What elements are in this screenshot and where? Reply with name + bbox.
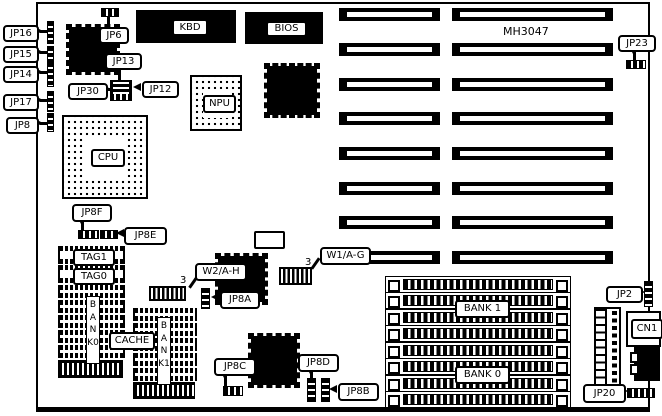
jp2-header xyxy=(644,281,653,307)
jp20-header xyxy=(594,307,621,390)
npu-label: NPU xyxy=(203,95,236,113)
expansion-slot-4-long xyxy=(452,112,613,125)
bank1-simm-label: BANK 1 xyxy=(455,300,510,318)
w2ah-callout: W2/A-H xyxy=(195,263,247,281)
jp12-callout: JP12 xyxy=(142,81,179,98)
simm-socket-1 xyxy=(385,276,571,293)
jp16-callout: JP16 xyxy=(3,25,39,42)
jp8b-callout: JP8B xyxy=(338,383,379,401)
cn1-label: CN1 xyxy=(631,319,662,339)
cpu-label: CPU xyxy=(91,149,125,167)
jp6-callout: JP6 xyxy=(99,27,129,44)
jp17-header xyxy=(47,91,54,112)
w2-jumper-block xyxy=(149,286,186,301)
expansion-slot-1-long xyxy=(452,8,613,21)
jp8d-callout: JP8D xyxy=(298,354,339,372)
jp17-callout: JP17 xyxy=(3,94,39,111)
jp8a-callout: JP8A xyxy=(220,291,260,309)
oscillator-outline xyxy=(254,231,285,249)
expansion-slot-6-long xyxy=(452,182,613,195)
jp23-callout: JP23 xyxy=(618,35,656,52)
expansion-slot-4-short xyxy=(339,112,440,125)
jp23-jumper xyxy=(626,60,646,69)
jp8c-callout: JP8C xyxy=(214,358,256,376)
jp14-callout: JP14 xyxy=(3,66,39,83)
expansion-slot-2-short xyxy=(339,43,440,56)
cache-label: CACHE xyxy=(109,332,155,350)
jp8f-callout: JP8F xyxy=(72,204,112,222)
jp8d-jumper xyxy=(307,378,316,402)
bank0-simm-label: BANK 0 xyxy=(455,366,510,384)
jp8c-jumper xyxy=(223,386,243,396)
kbd-chip-label: KBD xyxy=(172,19,208,36)
bank1-vertical-label: BANK1 xyxy=(157,317,171,385)
expansion-slot-1-short xyxy=(339,8,440,21)
expansion-slot-5-long xyxy=(452,147,613,160)
jp30-jp12-jumper-block xyxy=(110,80,132,101)
power-connector-notch-2 xyxy=(630,364,639,375)
expansion-slot-2-long xyxy=(452,43,613,56)
expansion-slot-3-short xyxy=(339,78,440,91)
w1ag-callout: W1/A-G xyxy=(320,247,371,265)
jp20-jumper xyxy=(627,388,655,398)
expansion-slot-7-long xyxy=(452,216,613,229)
jp15-header xyxy=(47,46,54,62)
simm-socket-4 xyxy=(385,325,571,342)
jp30-callout: JP30 xyxy=(68,83,108,100)
w1-jumper-block xyxy=(279,267,312,285)
jp14-header xyxy=(47,62,54,87)
bank0-vertical-label: BANK0 xyxy=(86,296,100,364)
expansion-slot-8-long xyxy=(452,251,613,264)
jp8e-callout: JP8E xyxy=(124,227,167,245)
jp15-callout: JP15 xyxy=(3,46,39,63)
tag0-label: TAG0 xyxy=(73,268,115,285)
w1-pin3-annotation: 3 xyxy=(305,258,311,268)
jp8-callout: JP8 xyxy=(6,117,39,134)
jp8a-jumper xyxy=(201,288,210,309)
jp16-header xyxy=(47,21,54,44)
jp6-header xyxy=(101,8,119,17)
jp8-header xyxy=(47,113,54,132)
jp8f-jumper xyxy=(78,230,99,239)
motherboard-diagram: MH3047 KBD BIOS NPU CPU JP16 JP15 JP14 J… xyxy=(0,0,662,416)
bios-chip-label: BIOS xyxy=(266,21,307,37)
expansion-slot-5-short xyxy=(339,147,440,160)
simm-socket-5 xyxy=(385,342,571,359)
power-connector-notch-1 xyxy=(630,352,639,363)
simm-socket-8 xyxy=(385,391,571,408)
board-model-text: MH3047 xyxy=(503,26,549,37)
jp20-callout: JP20 xyxy=(583,384,626,403)
expansion-slot-7-short xyxy=(339,216,440,229)
jp13-callout: JP13 xyxy=(105,53,142,70)
expansion-slot-6-short xyxy=(339,182,440,195)
qfp-chip-chipset xyxy=(264,63,320,118)
tag1-label: TAG1 xyxy=(73,249,115,266)
expansion-slot-3-long xyxy=(452,78,613,91)
jp2-callout: JP2 xyxy=(606,286,643,303)
w2-pin3-annotation: 3 xyxy=(180,276,186,286)
